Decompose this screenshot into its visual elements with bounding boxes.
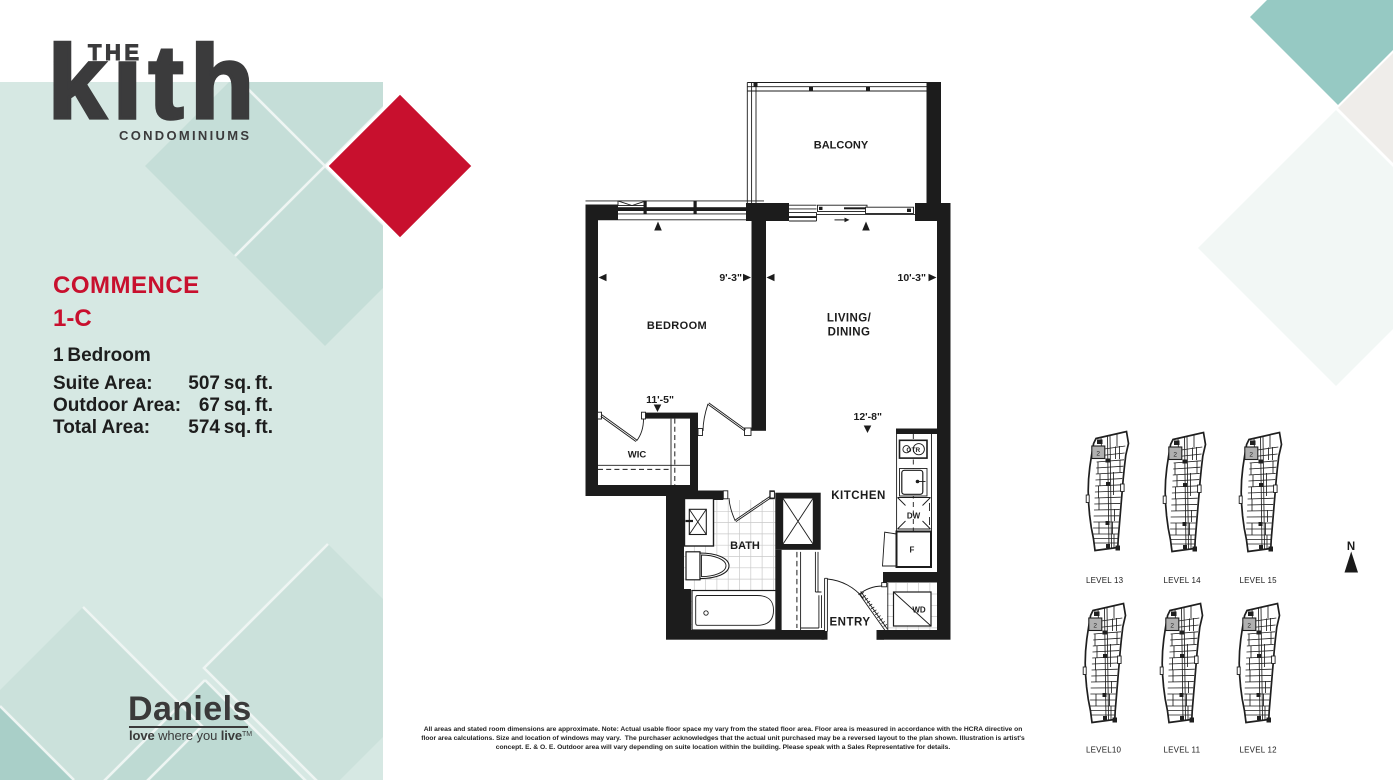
svg-text:DW: DW xyxy=(907,512,921,521)
svg-text:11'-5": 11'-5" xyxy=(646,394,674,406)
svg-text:LIVING/: LIVING/ xyxy=(827,313,872,325)
svg-text:9'-3": 9'-3" xyxy=(719,272,742,284)
svg-text:LEVEL 11: LEVEL 11 xyxy=(1164,746,1201,755)
svg-text:DINING: DINING xyxy=(828,327,871,339)
svg-text:N: N xyxy=(1347,541,1355,553)
svg-text:LEVEL 15: LEVEL 15 xyxy=(1240,576,1278,585)
svg-text:LEVEL 14: LEVEL 14 xyxy=(1164,576,1202,585)
svg-text:10'-3": 10'-3" xyxy=(898,272,927,284)
svg-text:WIC: WIC xyxy=(628,450,647,461)
svg-text:12'-8": 12'-8" xyxy=(854,411,883,423)
svg-text:BALCONY: BALCONY xyxy=(814,140,869,152)
svg-text:BATH: BATH xyxy=(730,540,760,552)
svg-text:LEVEL10: LEVEL10 xyxy=(1086,746,1122,755)
svg-text:LEVEL 13: LEVEL 13 xyxy=(1086,576,1124,585)
svg-text:BEDROOM: BEDROOM xyxy=(647,320,707,332)
svg-text:OTR: OTR xyxy=(906,447,920,454)
svg-text:LEVEL 12: LEVEL 12 xyxy=(1240,746,1278,755)
svg-text:KITCHEN: KITCHEN xyxy=(831,490,886,502)
svg-text:ENTRY: ENTRY xyxy=(829,617,870,629)
svg-text:F: F xyxy=(910,546,915,555)
svg-text:WD: WD xyxy=(912,606,926,615)
